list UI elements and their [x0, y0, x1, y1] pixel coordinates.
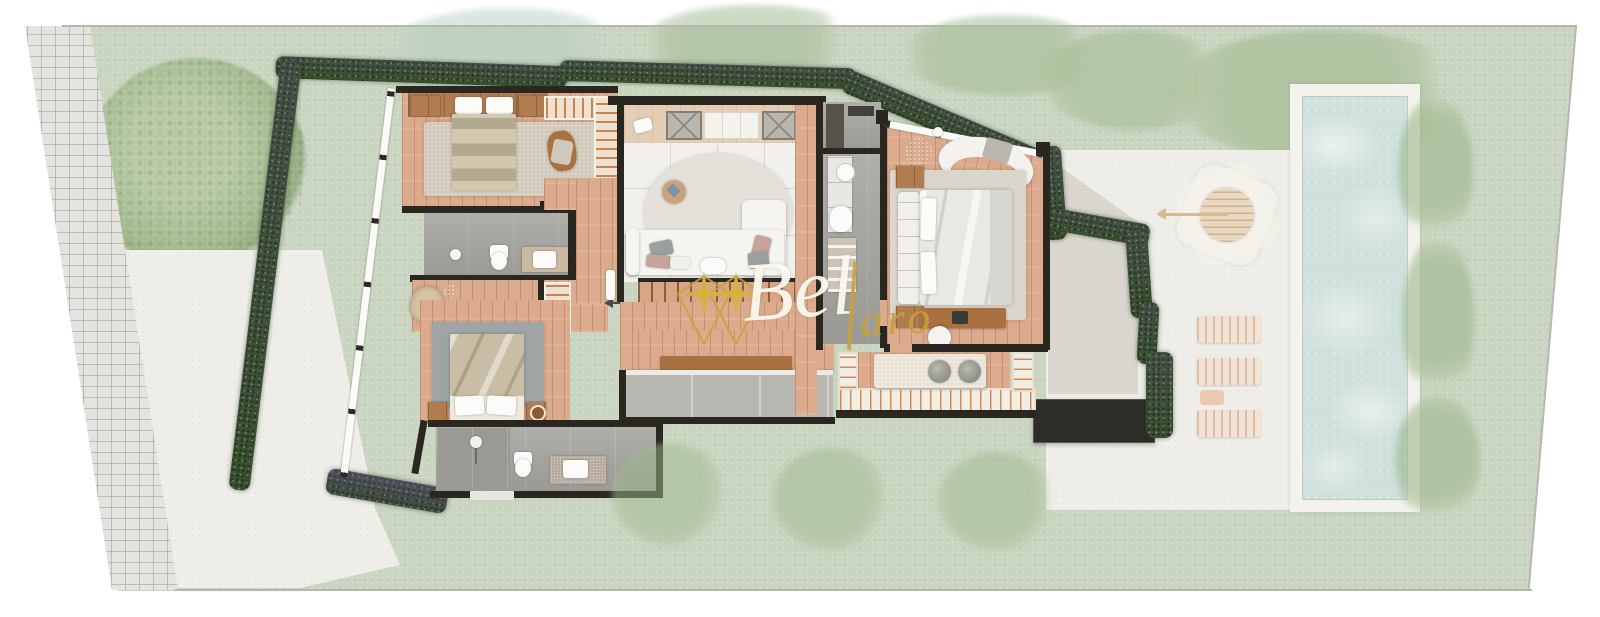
terrace-railing-right: [1012, 352, 1034, 392]
sun-lounger: [1197, 358, 1261, 385]
bathroom-1-right-wall: [568, 206, 576, 282]
plot-boundary-top: [62, 25, 1577, 27]
balcony-bottom-wall: [623, 417, 835, 424]
master-door-gap: [890, 344, 912, 352]
parasol-pole-arrow: [1164, 213, 1228, 216]
pool: [1302, 96, 1408, 500]
pool-side-shrubs: [1395, 395, 1480, 525]
toilet-1-bowl: [491, 252, 507, 270]
chair-throw: [550, 138, 574, 165]
master-pillow: [920, 252, 936, 294]
hedge-by-roof: [1146, 352, 1173, 438]
toilet-2-bowl: [515, 459, 531, 477]
media-sideboard: [704, 112, 760, 139]
parasol-pole-arrowhead: [1156, 208, 1166, 220]
flat-roof: [1033, 399, 1155, 443]
bedroom-2-nightstand-left: [428, 402, 448, 420]
lounger-side-table: [1200, 390, 1224, 405]
master-pillow: [920, 198, 936, 240]
bed-1-duvet: [452, 114, 516, 190]
nightstand-tray: [530, 405, 546, 421]
watermark-script-text: Bel: [739, 244, 857, 336]
door-leaf: [606, 270, 615, 300]
living-top-wall: [608, 96, 826, 105]
master-headboard: [898, 192, 920, 304]
terrace-bottom-wall: [836, 410, 1036, 418]
sofa-armrest: [626, 228, 639, 275]
bed-2-pillow: [486, 395, 516, 416]
pool-side-shrubs: [1402, 235, 1474, 405]
watermark-accent-text: aro: [859, 294, 936, 344]
bar-stool-2: [958, 360, 981, 383]
vanity-1-sink: [533, 251, 556, 268]
shower-head: [470, 436, 482, 448]
pendant-light: [933, 127, 943, 137]
bed-2-duvet: [450, 334, 524, 396]
balcony-left-post: [619, 370, 626, 424]
floor-lamp: [450, 249, 461, 260]
sun-lounger: [1197, 410, 1261, 437]
plot-boundary-bottom: [175, 589, 1532, 591]
bed-2-pillow: [454, 395, 484, 416]
master-nightstand-top: [896, 166, 924, 188]
terrace-railing-bottom: [838, 388, 1036, 412]
faded-tree: [612, 443, 727, 546]
living-left-wall: [617, 96, 624, 302]
bar-stool-1: [928, 360, 951, 383]
hall-plant: [443, 284, 457, 298]
bed-1-pillow: [455, 97, 482, 114]
door-threshold: [470, 491, 514, 500]
nightstand-left: [410, 96, 440, 116]
shower-hose: [475, 448, 477, 464]
utility-shelf: [848, 106, 874, 116]
master-corner-post: [876, 110, 888, 124]
master-bath-round-sink: [836, 163, 855, 182]
faded-tree: [938, 452, 1056, 550]
master-bed-blanket: [990, 190, 1012, 305]
vanity-2-sink: [563, 460, 588, 478]
utility-dark-counter: [826, 104, 844, 148]
pool-side-shrubs: [1398, 95, 1473, 245]
master-bathtub: [830, 206, 852, 232]
floor-plan-rendering: Bel aro: [0, 0, 1600, 617]
laptop: [952, 311, 968, 324]
bedroom-1-top-wall: [396, 86, 618, 93]
skylight-grille-1: [666, 111, 702, 140]
master-right-wall: [1043, 152, 1050, 350]
master-plant: [905, 137, 932, 166]
bed-1-pillow: [486, 97, 513, 114]
faded-tree: [772, 448, 890, 550]
skylight-grille-2: [762, 111, 796, 140]
sun-lounger: [1197, 316, 1261, 343]
